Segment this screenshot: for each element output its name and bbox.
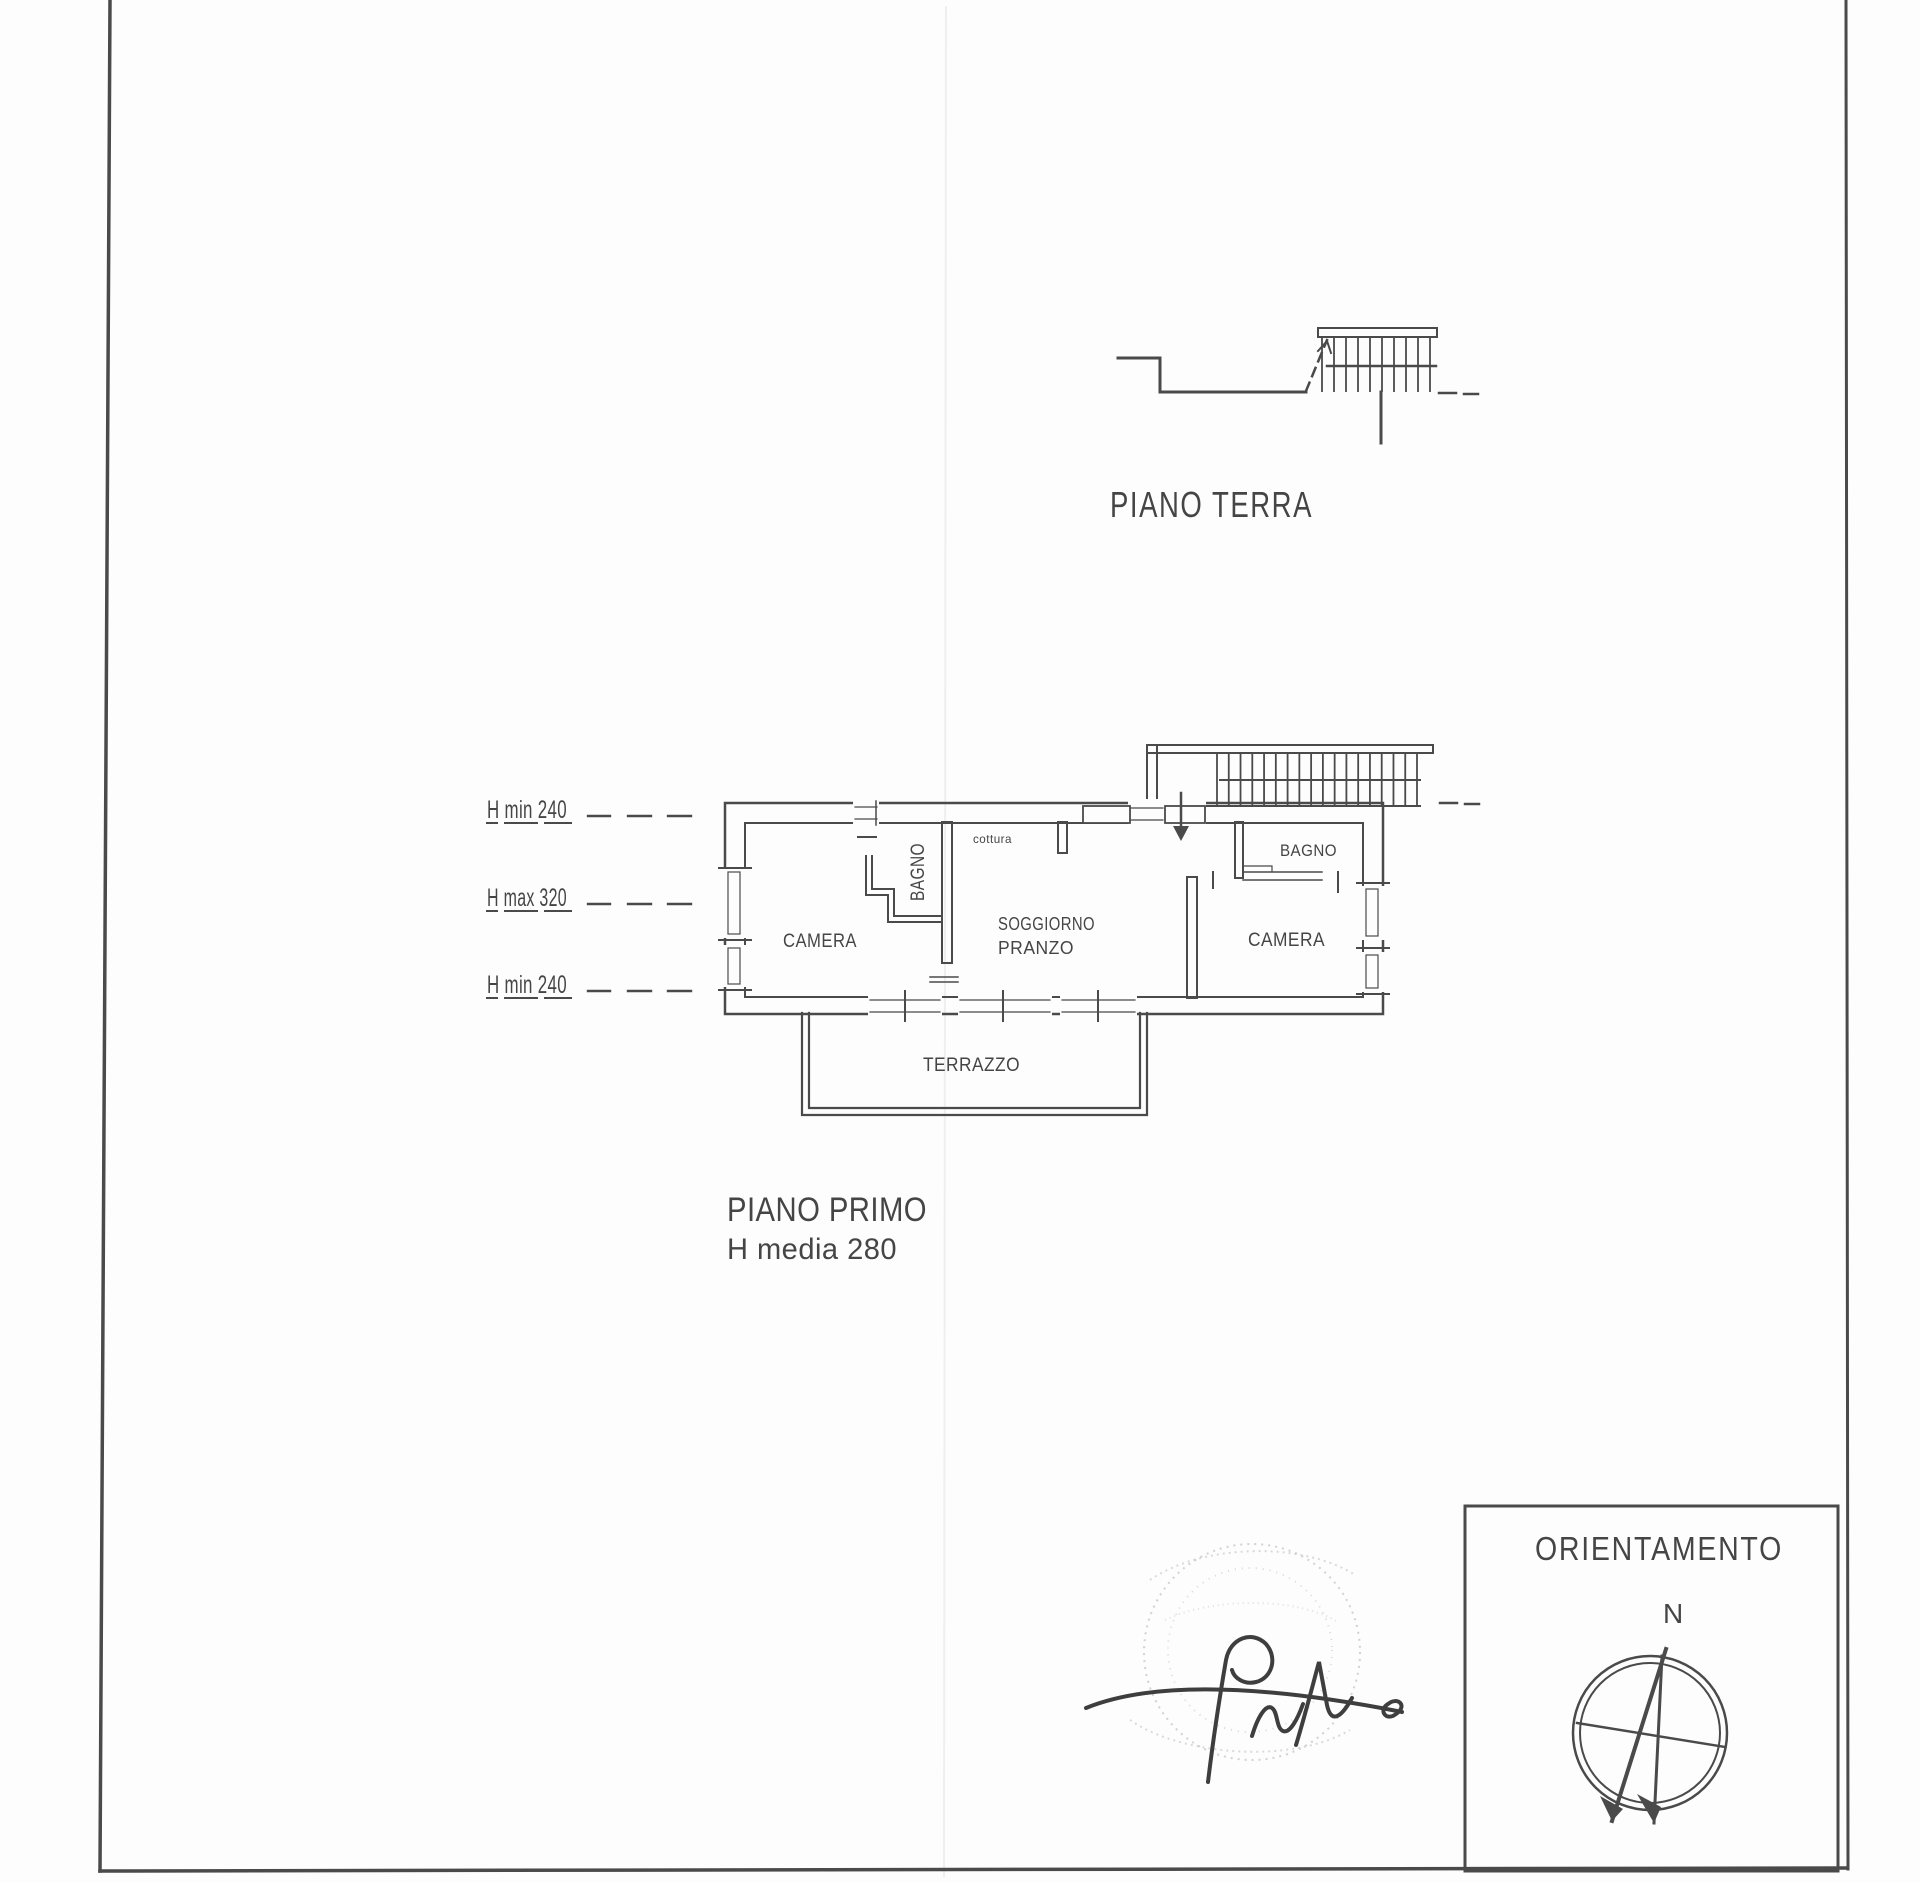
room-label-camera-right: CAMERA (1248, 930, 1325, 951)
ground-floor-label: PIANO TERRA (1110, 484, 1313, 525)
page-border (100, 0, 1848, 1871)
room-label-soggiorno: SOGGIORNO (998, 914, 1095, 934)
room-label-terrazzo: TERRAZZO (923, 1055, 1020, 1076)
height-note-2: H max 320 (487, 884, 567, 912)
ground-floor-stairs-diagram (1118, 328, 1478, 443)
scanned-floorplan-page: PIANO TERRA (0, 0, 1920, 1883)
height-note-1: H min 240 (487, 796, 567, 824)
orientation-title: ORIENTAMENTO (1535, 1530, 1783, 1567)
stair-treads (1322, 337, 1430, 392)
right-wall-windows (1357, 883, 1389, 994)
orientation-panel: ORIENTAMENTO N (1465, 1506, 1838, 1871)
interior-walls (858, 822, 1338, 998)
scan-fold-line (944, 6, 946, 1877)
left-wall-windows (719, 868, 751, 990)
room-label-cottura: cottura (973, 832, 1012, 846)
first-floor-label: PIANO PRIMO (727, 1191, 927, 1229)
bottom-wall-windows (868, 991, 1137, 1021)
handwritten-signature (1086, 1637, 1402, 1782)
room-label-bagno-right: BAGNO (1280, 841, 1337, 860)
room-label-pranzo: PRANZO (998, 938, 1074, 958)
first-floor-height-note: H media 280 (727, 1233, 897, 1266)
room-label-camera-left: CAMERA (783, 931, 857, 952)
first-floor-plan (719, 793, 1389, 1021)
stamp-and-signature (1086, 1544, 1402, 1782)
first-floor-stairwell (1147, 745, 1479, 806)
compass-rose (1573, 1649, 1727, 1823)
north-label: N (1663, 1598, 1684, 1629)
height-note-3: H min 240 (487, 971, 567, 999)
height-annotations: H min 240 H max 320 H min 240 (487, 796, 691, 999)
top-wall-window (853, 800, 879, 825)
room-label-bagno-left: BAGNO (908, 843, 929, 901)
